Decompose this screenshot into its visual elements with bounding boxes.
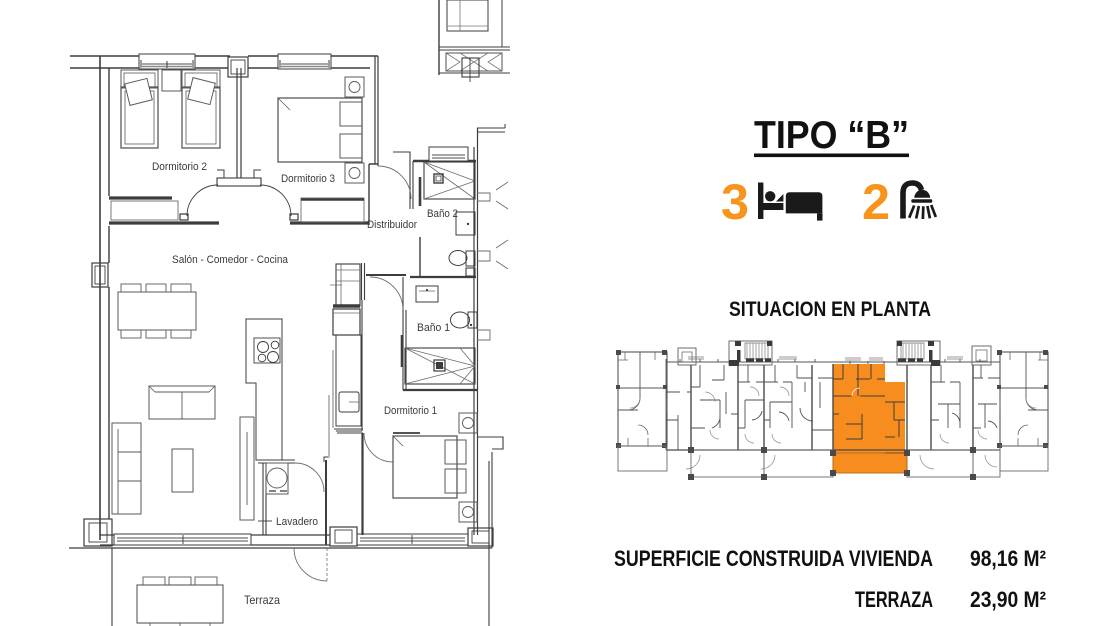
svg-text:3: 3 [721, 174, 749, 230]
svg-text:SITUACION EN PLANTA: SITUACION EN PLANTA [729, 298, 931, 321]
svg-text:Baño 2: Baño 2 [427, 208, 458, 220]
svg-text:Distribuidor: Distribuidor [367, 219, 417, 231]
svg-text:98,16 M²: 98,16 M² [970, 546, 1046, 571]
svg-text:TERRAZA: TERRAZA [855, 587, 933, 612]
svg-text:Dormitorio 2: Dormitorio 2 [152, 161, 207, 173]
svg-text:Terraza: Terraza [244, 593, 280, 607]
svg-text:Lavadero: Lavadero [276, 516, 318, 528]
svg-text:Baño 1: Baño 1 [417, 322, 450, 334]
svg-text:Dormitorio 1: Dormitorio 1 [384, 405, 437, 417]
svg-text:2: 2 [862, 174, 890, 230]
svg-text:23,90 M²: 23,90 M² [970, 587, 1046, 612]
svg-text:TIPO “B”: TIPO “B” [754, 114, 909, 157]
svg-text:SUPERFICIE CONSTRUIDA VIVIENDA: SUPERFICIE CONSTRUIDA VIVIENDA [614, 546, 933, 571]
svg-text:Salón - Comedor - Cocina: Salón - Comedor - Cocina [172, 254, 289, 266]
svg-text:Dormitorio 3: Dormitorio 3 [281, 173, 335, 185]
